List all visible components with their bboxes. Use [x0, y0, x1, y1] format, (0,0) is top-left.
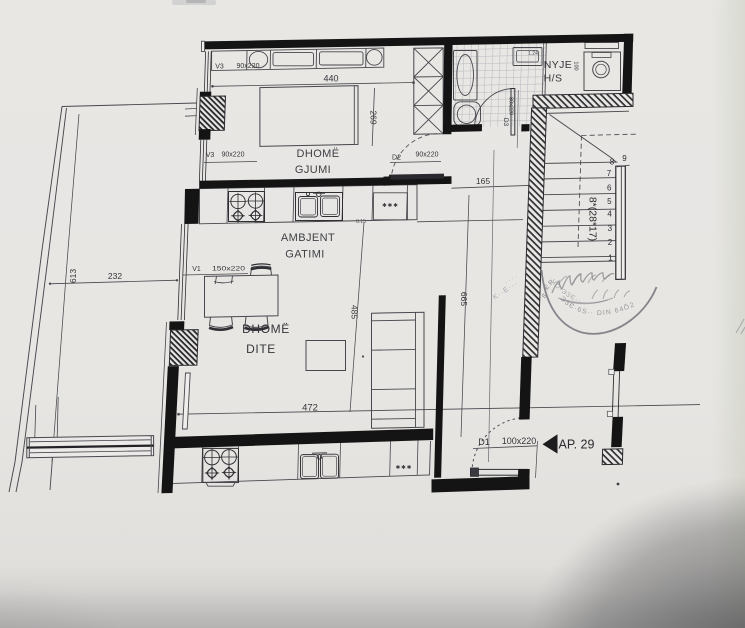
svg-text:150x220: 150x220 [212, 266, 245, 273]
svg-text:100: 100 [573, 61, 579, 70]
svg-text:90x220: 90x220 [416, 152, 439, 159]
svg-text:AMBJENT: AMBJENT [281, 232, 335, 244]
svg-text:9: 9 [622, 154, 627, 163]
svg-text:AP. 29: AP. 29 [559, 438, 595, 452]
svg-text:✱✱✱: ✱✱✱ [396, 464, 413, 471]
svg-text:V3: V3 [215, 64, 224, 71]
svg-text:232: 232 [108, 271, 122, 281]
svg-text:·K··E···: ·K··E··· [489, 280, 519, 303]
svg-text:V3: V3 [206, 152, 215, 159]
svg-text:613: 613 [68, 269, 78, 283]
svg-text:NYJE: NYJE [544, 59, 572, 71]
svg-text:DITE: DITE [246, 342, 276, 356]
svg-text:1.24: 1.24 [528, 51, 538, 57]
svg-text:GATIMI: GATIMI [285, 249, 324, 261]
svg-text:H/S: H/S [544, 73, 563, 85]
svg-text:D3: D3 [502, 118, 509, 127]
svg-text:472: 472 [302, 403, 318, 414]
svg-text:V1: V1 [192, 266, 201, 273]
svg-text:3: 3 [608, 224, 613, 233]
svg-text:8*(28*17): 8*(28*17) [587, 197, 599, 241]
svg-text:8: 8 [610, 158, 615, 167]
svg-text:DHOMË: DHOMË [297, 148, 340, 160]
svg-text:665: 665 [459, 292, 469, 306]
svg-text:DHOMË: DHOMË [242, 322, 290, 336]
svg-text:80x220: 80x220 [508, 97, 514, 115]
svg-text:8.15: 8.15 [356, 219, 366, 225]
svg-text:D2: D2 [392, 155, 401, 162]
svg-text:GJUMI: GJUMI [295, 164, 331, 176]
svg-text:165: 165 [476, 176, 490, 186]
svg-text:4: 4 [607, 210, 612, 219]
svg-text:485: 485 [350, 305, 360, 319]
svg-text:7: 7 [607, 169, 612, 178]
svg-text:90x220: 90x220 [237, 63, 260, 70]
svg-text:✱✱✱: ✱✱✱ [382, 202, 399, 209]
svg-text:6: 6 [607, 184, 612, 193]
svg-text:1: 1 [608, 253, 613, 262]
svg-text:2: 2 [608, 238, 613, 247]
svg-text:5: 5 [607, 197, 612, 206]
svg-text:90x220: 90x220 [222, 152, 245, 159]
svg-text:440: 440 [323, 74, 338, 84]
svg-text:100x220: 100x220 [502, 436, 537, 446]
svg-text:269: 269 [369, 110, 379, 124]
svg-text:D1: D1 [478, 437, 490, 447]
